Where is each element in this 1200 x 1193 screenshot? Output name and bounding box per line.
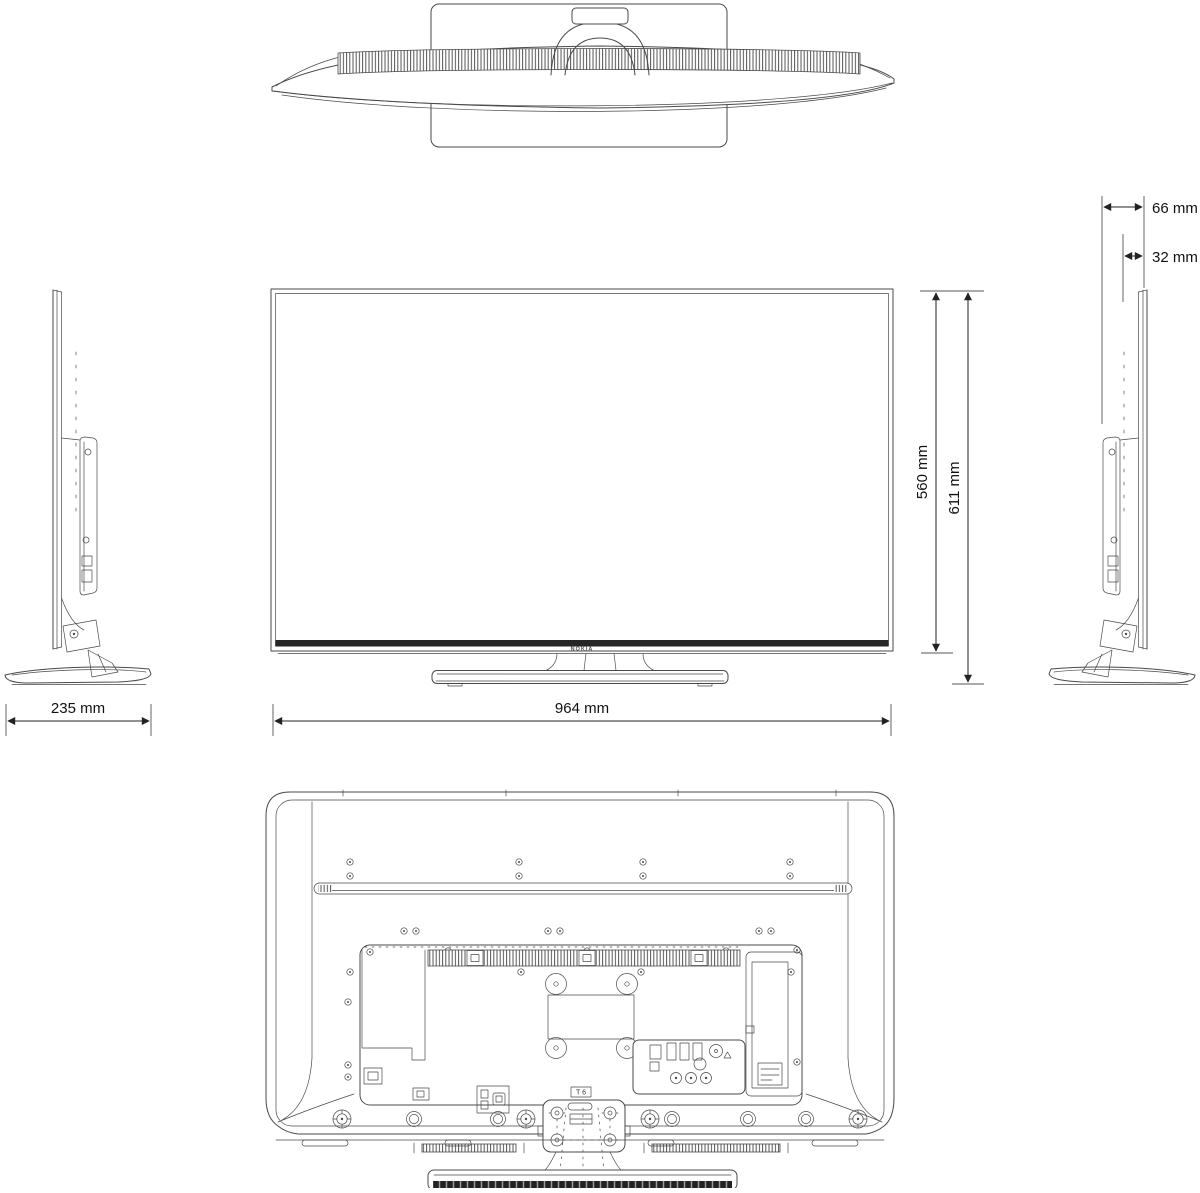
width-label: 964 mm [555,700,609,717]
left-side-stand-base [5,667,151,685]
stand-screw-label: T 6 [571,1087,591,1097]
front-view-stand-neck [546,654,654,671]
back-view: T 6 [266,790,894,1188]
dimension-height-with-stand: 611 mm [946,293,984,684]
dimension-depth-total: 66 mm [1102,196,1198,424]
stand-base-depth-label: 235 mm [51,700,105,717]
left-side-stand-bracket [63,620,100,652]
stand-mount-plate [538,1100,630,1152]
bottom-vent-grille-right [652,1144,780,1152]
back-view-handle-bar [314,883,852,894]
depth-total-label: 66 mm [1152,200,1198,217]
dimension-width: 964 mm [273,700,891,736]
dimension-stand-base-depth: 235 mm [6,700,151,736]
height-without-stand-label: 560 mm [914,445,931,499]
left-side-back-housing [80,437,97,595]
tv-dimensions-drawing: 66 mm 32 mm NOK [0,0,1200,1188]
right-side-back-housing [1103,437,1120,595]
dimension-depth-panel: 32 mm [1123,234,1198,302]
depth-panel-label: 32 mm [1152,249,1198,266]
height-with-stand-label: 611 mm [946,461,963,514]
connector-panel [633,1040,745,1094]
bottom-vent-grille-left [422,1144,516,1152]
right-side-stand-base [1049,667,1195,685]
drawing-svg: 66 mm 32 mm NOK [0,0,1200,1188]
front-view-stand-base [432,671,728,687]
left-side-view [5,290,151,685]
brand-logo: NOKIA [571,647,594,653]
back-view-stand-base [428,1170,737,1188]
front-view: NOKIA [271,289,893,686]
stand-screw-label-text: T 6 [576,1090,586,1097]
right-side-view [1049,290,1195,685]
top-view [272,4,894,147]
right-side-stand-bracket [1100,620,1137,652]
front-view-outer-frame [271,289,893,651]
